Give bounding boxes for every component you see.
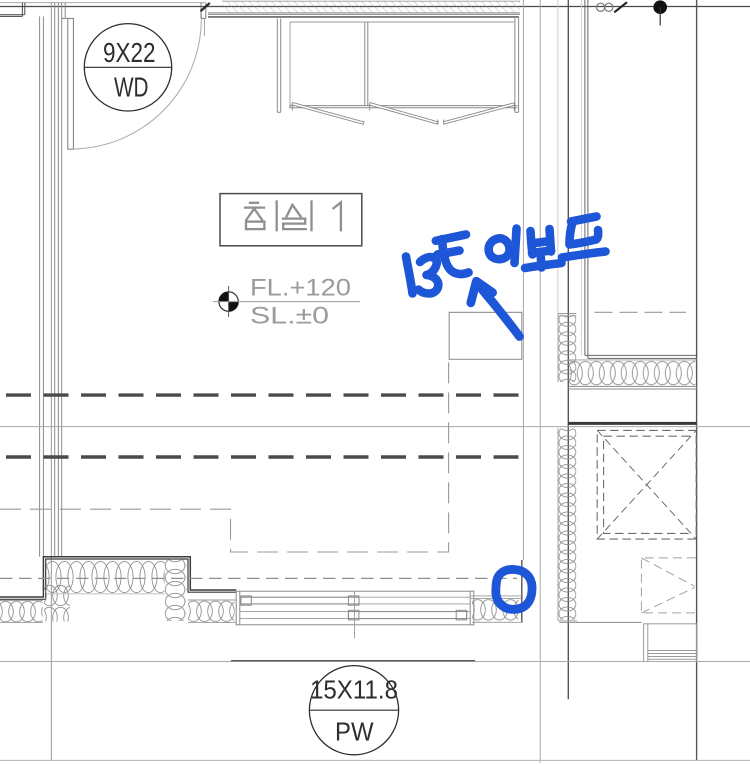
svg-text:FL.+120: FL.+120 [250,275,351,302]
svg-text:9X22: 9X22 [103,37,156,68]
svg-text:SL.±0: SL.±0 [250,303,329,330]
svg-text:PW: PW [335,717,374,747]
svg-text:15X11.8: 15X11.8 [310,674,398,704]
svg-text:WD: WD [114,72,149,103]
